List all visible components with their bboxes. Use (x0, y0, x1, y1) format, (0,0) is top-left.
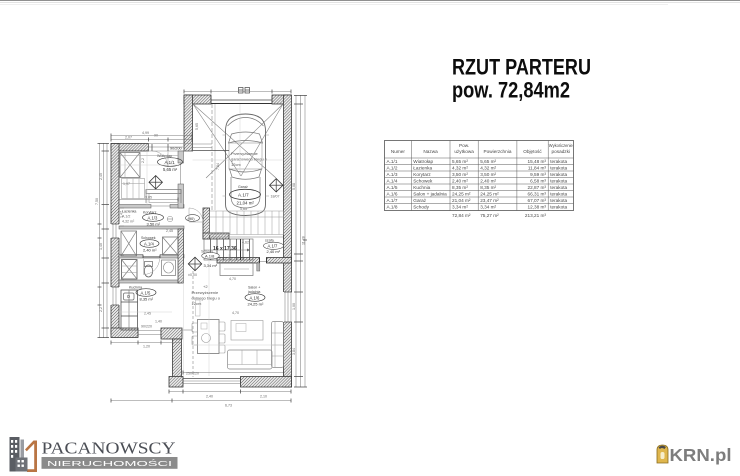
svg-text:250/220: 250/220 (186, 372, 199, 376)
svg-text:3,84: 3,84 (292, 348, 296, 355)
svg-text:8,35 m²: 8,35 m² (452, 185, 468, 190)
svg-text:A.1/4: A.1/4 (387, 179, 398, 184)
svg-text:21,04 m²: 21,04 m² (452, 198, 471, 203)
svg-text:A.1/2: A.1/2 (387, 166, 398, 171)
svg-text:1,47: 1,47 (120, 211, 124, 218)
svg-text:7,84: 7,84 (216, 163, 220, 170)
svg-text:+2: +2 (203, 284, 208, 289)
svg-text:A.1/1: A.1/1 (387, 159, 398, 164)
svg-text:Numer: Numer (391, 149, 406, 154)
svg-text:11,28: 11,28 (302, 236, 306, 245)
svg-text:3,50 m²: 3,50 m² (452, 172, 468, 177)
svg-text:22,87 m³: 22,87 m³ (528, 185, 547, 190)
svg-text:5,08: 5,08 (292, 183, 296, 190)
svg-text:Salon +: Salon + (248, 286, 260, 290)
svg-text:(90): (90) (188, 216, 196, 221)
svg-text:24,25 m²: 24,25 m² (248, 302, 264, 307)
svg-text:5,65: 5,65 (240, 207, 247, 211)
svg-text:24,25 m²: 24,25 m² (452, 192, 471, 197)
svg-text:terakota: terakota (550, 185, 567, 190)
svg-text:A.1/8: A.1/8 (205, 254, 215, 259)
svg-text:12,38 m³: 12,38 m³ (528, 205, 547, 210)
svg-text:Schowek: Schowek (413, 179, 433, 184)
svg-text:8,35 m²: 8,35 m² (480, 185, 496, 190)
svg-text:1,40: 1,40 (155, 320, 162, 324)
svg-text:Przewyższenie: Przewyższenie (231, 151, 258, 156)
svg-text:A.1/1: A.1/1 (165, 160, 176, 165)
svg-text:PACANOWSCY: PACANOWSCY (42, 439, 176, 458)
svg-text:7,50: 7,50 (95, 198, 99, 205)
svg-text:KRN.pl: KRN.pl (670, 445, 732, 465)
svg-text:terakota: terakota (550, 159, 567, 164)
svg-text:4,32 m²: 4,32 m² (122, 220, 135, 224)
svg-text:5,65 m²: 5,65 m² (452, 159, 468, 164)
svg-text:A.1/5: A.1/5 (387, 185, 398, 190)
svg-text:213,21 m³: 213,21 m³ (525, 213, 547, 218)
svg-text:Łazienka: Łazienka (122, 210, 136, 214)
svg-text:4,70: 4,70 (232, 311, 239, 315)
svg-text:9,59 m³: 9,59 m³ (530, 172, 546, 177)
svg-text:2,40: 2,40 (206, 395, 213, 399)
svg-text:1,97: 1,97 (123, 182, 130, 186)
svg-text:Przewyższenie: Przewyższenie (192, 290, 219, 295)
svg-text:24,25 m²: 24,25 m² (480, 192, 499, 197)
svg-text:Garaż: Garaż (238, 185, 248, 189)
svg-text:Pow.: Pow. (459, 143, 469, 148)
svg-text:16 x 17,36: 16 x 17,36 (213, 246, 237, 252)
svg-text:terakota: terakota (550, 179, 567, 184)
svg-text:terakota: terakota (550, 205, 567, 210)
svg-text:A.1/6: A.1/6 (387, 192, 398, 197)
svg-text:Salon + jadalnia: Salon + jadalnia (413, 192, 447, 197)
svg-text:Łazienka: Łazienka (413, 166, 432, 171)
svg-text:6,58 m³: 6,58 m³ (530, 179, 546, 184)
svg-text:4,62: 4,62 (242, 241, 249, 245)
svg-text:90/200: 90/200 (170, 147, 182, 151)
svg-text:Objętość: Objętość (523, 149, 542, 154)
svg-text:2,40 m²: 2,40 m² (480, 179, 496, 184)
svg-text:±0,00: ±0,00 (188, 273, 197, 277)
svg-text:Wykończenie: Wykończenie (549, 143, 573, 148)
svg-text:Schody: Schody (413, 205, 429, 210)
svg-text:2,40 m²: 2,40 m² (143, 248, 157, 253)
svg-text:5,65 m²: 5,65 m² (163, 167, 178, 172)
svg-text:2,45: 2,45 (166, 229, 173, 233)
svg-text:Nazwa: Nazwa (423, 149, 438, 154)
svg-text:2,2: 2,2 (141, 158, 145, 163)
svg-text:3,34 m²: 3,34 m² (204, 263, 218, 268)
svg-text:4,99: 4,99 (142, 131, 149, 135)
svg-text:2,40 m²: 2,40 m² (267, 249, 281, 254)
svg-text:12cm: 12cm (192, 301, 202, 306)
svg-text:5,65: 5,65 (195, 123, 199, 130)
svg-text:18/07: 18/07 (271, 195, 280, 199)
svg-text:terakota: terakota (550, 192, 567, 197)
svg-text:A.1/3: A.1/3 (148, 215, 158, 220)
svg-text:posadzki: posadzki (552, 149, 571, 154)
svg-text:RZUT PARTERU: RZUT PARTERU (452, 55, 591, 80)
svg-text:A.1/6: A.1/6 (250, 295, 260, 300)
svg-text:terakota: terakota (550, 172, 567, 177)
svg-text:Powierzchnia: Powierzchnia (484, 149, 512, 154)
svg-text:6,73: 6,73 (225, 404, 232, 408)
svg-text:75,27 m²: 75,27 m² (480, 213, 499, 218)
svg-text:23,47 m²: 23,47 m² (480, 198, 499, 203)
svg-text:pow. 72,84m2: pow. 72,84m2 (452, 78, 570, 103)
svg-text:Kuchnia: Kuchnia (129, 286, 142, 290)
svg-text:1,20: 1,20 (143, 345, 150, 349)
svg-text:5,65 m²: 5,65 m² (480, 159, 496, 164)
svg-text:A.1/3: A.1/3 (387, 172, 398, 177)
svg-text:72,84 m²: 72,84 m² (452, 213, 471, 218)
svg-text:4,32 m²: 4,32 m² (452, 166, 468, 171)
svg-text:15,48 m³: 15,48 m³ (528, 159, 547, 164)
svg-text:3,34 m²: 3,34 m² (452, 205, 468, 210)
svg-text:3,50 m²: 3,50 m² (147, 222, 161, 227)
svg-text:3,34 m²: 3,34 m² (480, 205, 496, 210)
svg-text:2,07: 2,07 (125, 136, 132, 140)
svg-text:66,31 m³: 66,31 m³ (528, 192, 547, 197)
svg-text:garażowego biegu o: garażowego biegu o (231, 157, 268, 162)
svg-text:Kuchnia: Kuchnia (413, 185, 430, 190)
svg-text:NIERUCHOMOŚCI: NIERUCHOMOŚCI (47, 459, 172, 468)
svg-text:A.1/7: A.1/7 (238, 193, 249, 198)
svg-text:3,50 m²: 3,50 m² (480, 172, 496, 177)
svg-text:Wiatrołap: Wiatrołap (413, 159, 433, 164)
svg-text:A.1/5: A.1/5 (141, 290, 151, 295)
svg-text:2,10: 2,10 (260, 395, 267, 399)
svg-text:terakota: terakota (550, 198, 567, 203)
svg-text:8,35 m²: 8,35 m² (140, 297, 154, 302)
svg-text:użytkowa: użytkowa (454, 149, 474, 154)
svg-text:67,07 m³: 67,07 m³ (528, 198, 547, 203)
svg-text:21,04 m²: 21,04 m² (237, 201, 255, 206)
svg-text:90/220: 90/220 (141, 325, 152, 329)
svg-text:2,40 m²: 2,40 m² (452, 179, 468, 184)
svg-text:4,70: 4,70 (229, 277, 236, 281)
svg-text:Garaż: Garaż (413, 198, 426, 203)
svg-text:11,84 m³: 11,84 m³ (528, 166, 547, 171)
svg-text:Korytarz: Korytarz (413, 172, 431, 177)
svg-text:A.1/8: A.1/8 (387, 205, 398, 210)
svg-text:3,85: 3,85 (145, 196, 152, 200)
svg-text:szafa: szafa (265, 239, 274, 243)
svg-text:4,32 m²: 4,32 m² (480, 166, 496, 171)
svg-text:A.1/4: A.1/4 (144, 241, 154, 246)
svg-text:A.1/7: A.1/7 (387, 198, 398, 203)
svg-text:A.1/7: A.1/7 (268, 244, 278, 249)
svg-text:terakota: terakota (550, 166, 567, 171)
svg-text:1,00: 1,00 (292, 303, 296, 310)
